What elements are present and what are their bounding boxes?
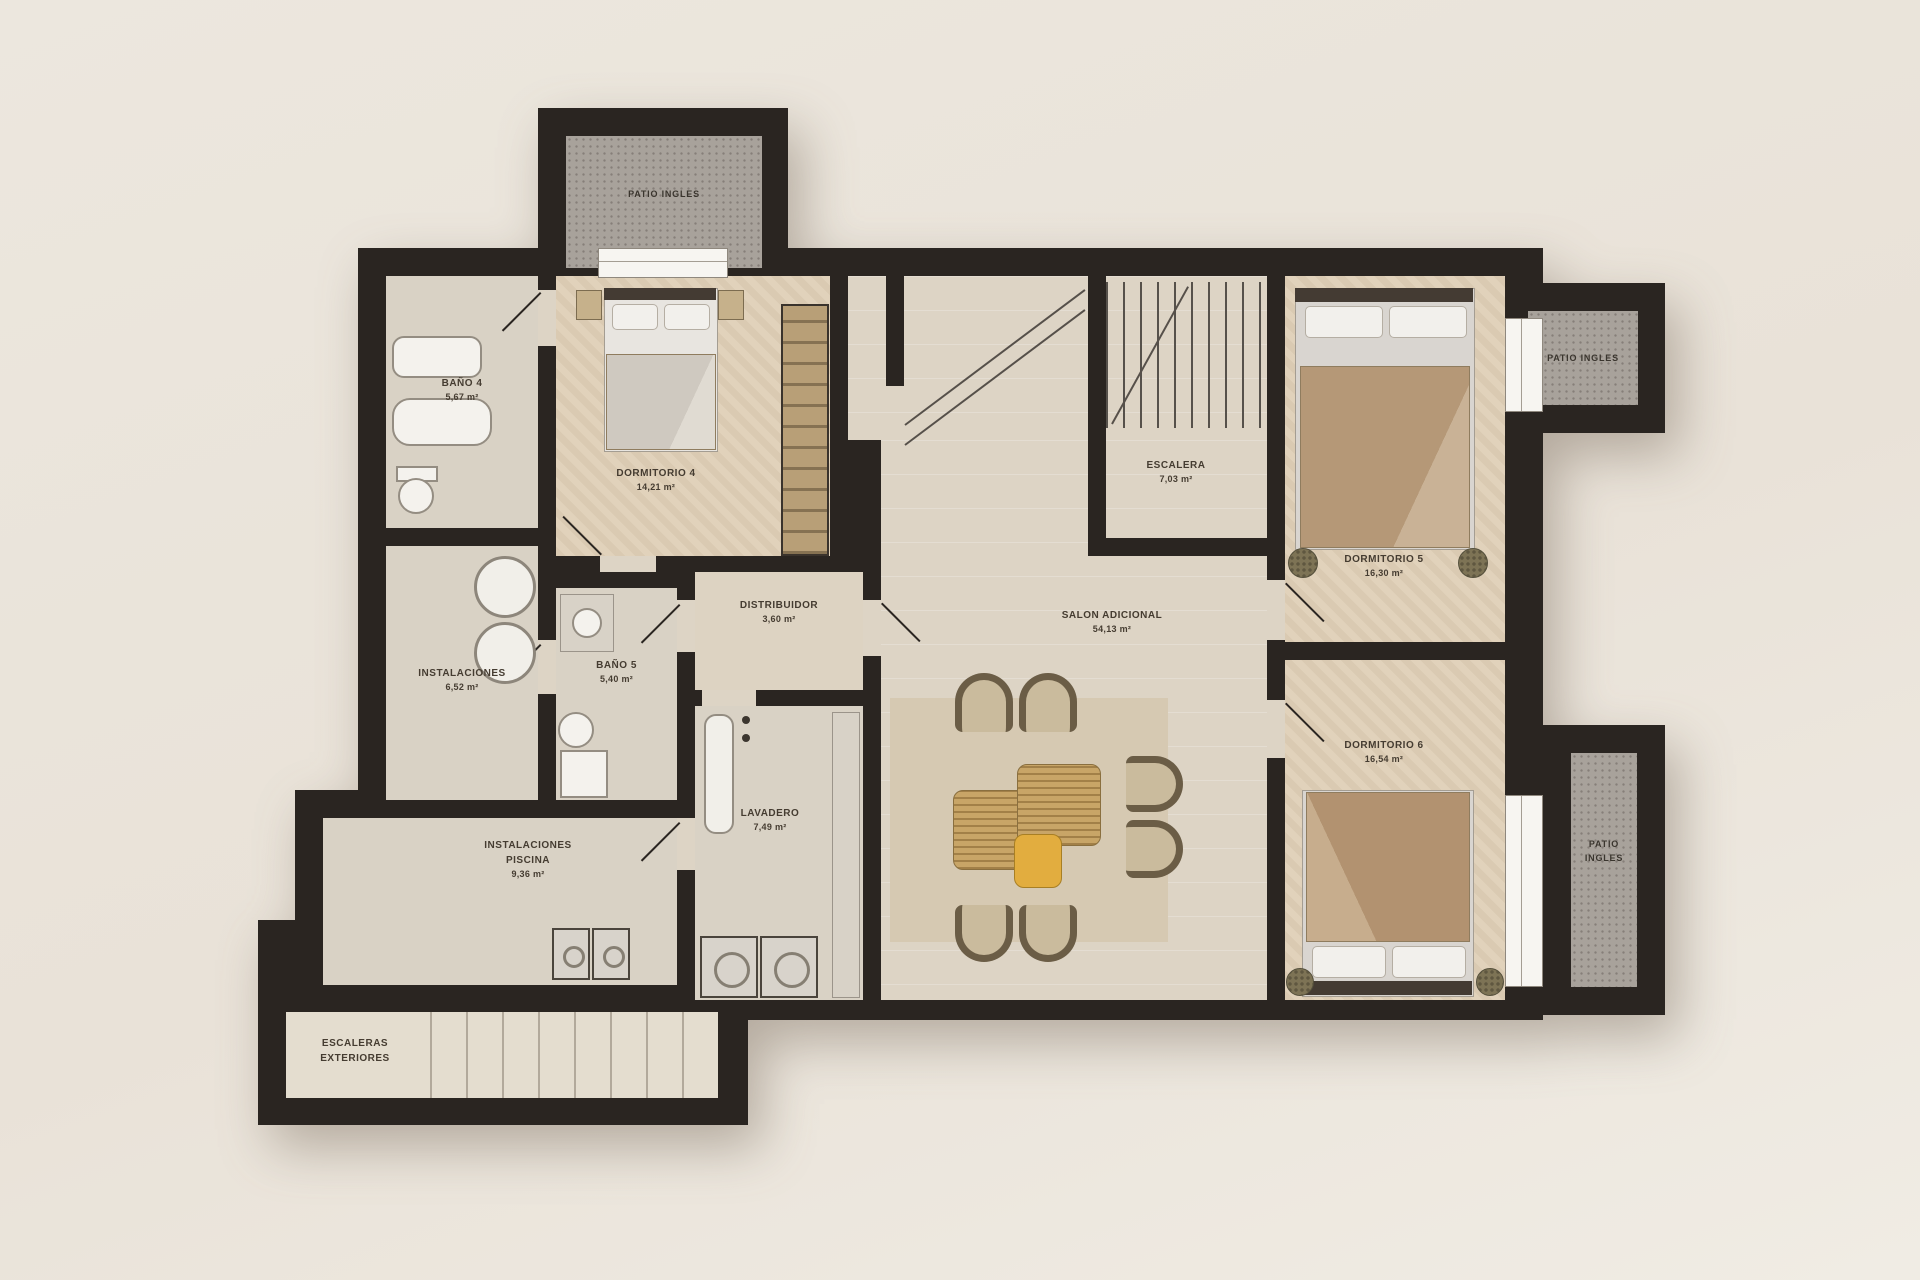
armchair-top-right (1019, 673, 1077, 732)
dorm6-headboard (1302, 981, 1472, 995)
washer (700, 936, 758, 998)
door-gap-lavadero (702, 690, 756, 706)
dorm6-plant-left (1286, 968, 1314, 996)
boiler-tank-1 (474, 556, 536, 618)
dorm6-blanket (1306, 792, 1470, 942)
window-dorm6-patio (1505, 795, 1543, 987)
distribuidor-floor (695, 572, 863, 690)
wall-left-column (538, 276, 556, 800)
dorm5-headboard (1295, 288, 1473, 302)
room-label-bano5: BAÑO 5 5,40 m² (556, 658, 677, 686)
door-gap-dorm6 (1267, 700, 1285, 758)
armchair-top-left (955, 673, 1013, 732)
dorm5-pillow-right (1389, 306, 1467, 338)
door-gap-dorm5 (1267, 580, 1285, 640)
patio-right-bottom-floor (1571, 753, 1637, 987)
armchair-right-upper (1126, 756, 1183, 812)
wall-dorm5-dorm6 (1267, 642, 1505, 660)
pool-pump-2 (592, 928, 630, 980)
room-label-patio-bottom: PATIO INGLES (1571, 838, 1637, 865)
yellow-pouf (1014, 834, 1062, 888)
dorm6-pillow-right (1392, 946, 1466, 978)
door-gap-salon (863, 600, 881, 656)
room-label-escaleras-exteriores: ESCALERAS EXTERIORES (290, 1036, 420, 1066)
room-label-bano4: BAÑO 4 5,67 m² (386, 376, 538, 404)
dorm4-closet (781, 304, 829, 556)
bano5-toilet (558, 712, 594, 748)
faucet-dot-1 (742, 716, 750, 724)
door-gap-bano4 (538, 290, 556, 346)
faucet-dot-2 (742, 734, 750, 742)
wall-instalaciones-piscina (323, 800, 677, 818)
pool-pump-1-icon (563, 946, 585, 968)
dorm5-pillow-left (1305, 306, 1383, 338)
room-label-patio-top: PATIO INGLES (566, 188, 762, 202)
room-label-dorm5: DORMITORIO 5 16,30 m² (1289, 552, 1479, 580)
dryer-drum-icon (774, 952, 810, 988)
patio-top-name: PATIO INGLES (566, 188, 762, 202)
escalera-treads (1106, 282, 1267, 428)
pool-pump-2-icon (603, 946, 625, 968)
wall-escalera-west (1088, 276, 1106, 556)
bano4-toilet (398, 478, 434, 514)
wall-salon-west (863, 440, 881, 1000)
dorm5-blanket (1300, 366, 1470, 548)
exterior-stairs-treads (430, 1012, 718, 1098)
room-label-salon: SALON ADICIONAL 54,13 m² (1017, 608, 1207, 636)
washer-drum-icon (714, 952, 750, 988)
dryer (760, 936, 818, 998)
dorm4-nightstand-right (718, 290, 744, 320)
room-label-dorm4: DORMITORIO 4 14,21 m² (566, 466, 746, 494)
dorm4-pillow-right (664, 304, 710, 330)
bano5-shower (560, 750, 608, 798)
bano5-sink (572, 608, 602, 638)
dorm4-pillow-left (612, 304, 658, 330)
dorm4-headboard (604, 288, 716, 300)
door-gap-instalaciones (538, 640, 556, 694)
wall-escalera-south (1088, 538, 1267, 556)
bano4-sink-counter (392, 336, 482, 378)
armchair-right-lower (1126, 820, 1183, 878)
lavadero-counter (832, 712, 860, 998)
room-label-lavadero: LAVADERO 7,49 m² (695, 806, 845, 834)
dorm4-blanket (606, 354, 716, 450)
room-label-dorm6: DORMITORIO 6 16,54 m² (1289, 738, 1479, 766)
dorm6-plant-right (1476, 968, 1504, 996)
room-label-distribuidor: DISTRIBUIDOR 3,60 m² (695, 598, 863, 626)
armchair-bottom-right (1019, 905, 1077, 962)
dorm6-pillow-left (1312, 946, 1386, 978)
door-gap-piscina (677, 818, 695, 870)
floor-plan: PATIO INGLES BAÑO 4 5,67 m² DORMITORIO 4… (0, 0, 1920, 1280)
door-gap-dorm4 (600, 556, 656, 572)
pool-pump-1 (552, 928, 590, 980)
room-label-instalaciones: INSTALACIONES 6,52 m² (386, 666, 538, 694)
bano4-bathtub (392, 398, 492, 446)
wall-stair-stub (886, 276, 904, 386)
door-gap-bano5 (677, 600, 695, 652)
window-patio-top (598, 248, 728, 278)
wall-bano4-instalaciones (386, 528, 538, 546)
dorm4-nightstand-left (576, 290, 602, 320)
room-label-escalera: ESCALERA 7,03 m² (1096, 458, 1256, 486)
armchair-bottom-left (955, 905, 1013, 962)
room-label-patio-right: PATIO INGLES (1528, 352, 1638, 366)
room-label-piscina: INSTALACIONES PISCINA 9,36 m² (440, 838, 616, 881)
